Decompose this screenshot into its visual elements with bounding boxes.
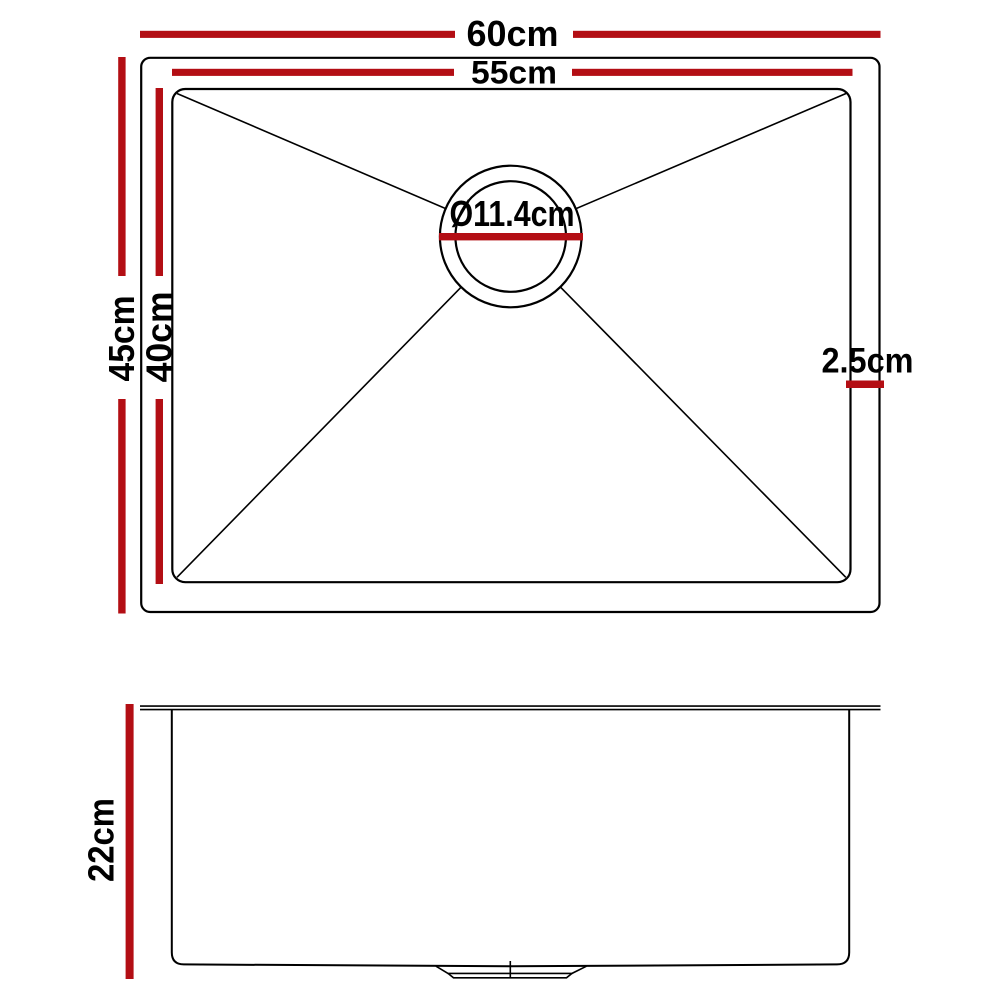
svg-text:22cm: 22cm [81,798,122,882]
svg-text:60cm: 60cm [467,13,559,54]
svg-text:45cm: 45cm [101,296,142,382]
svg-text:40cm: 40cm [139,291,180,382]
svg-text:55cm: 55cm [471,55,557,91]
svg-text:2.5cm: 2.5cm [822,342,914,381]
svg-text:Ø11.4cm: Ø11.4cm [450,193,575,234]
